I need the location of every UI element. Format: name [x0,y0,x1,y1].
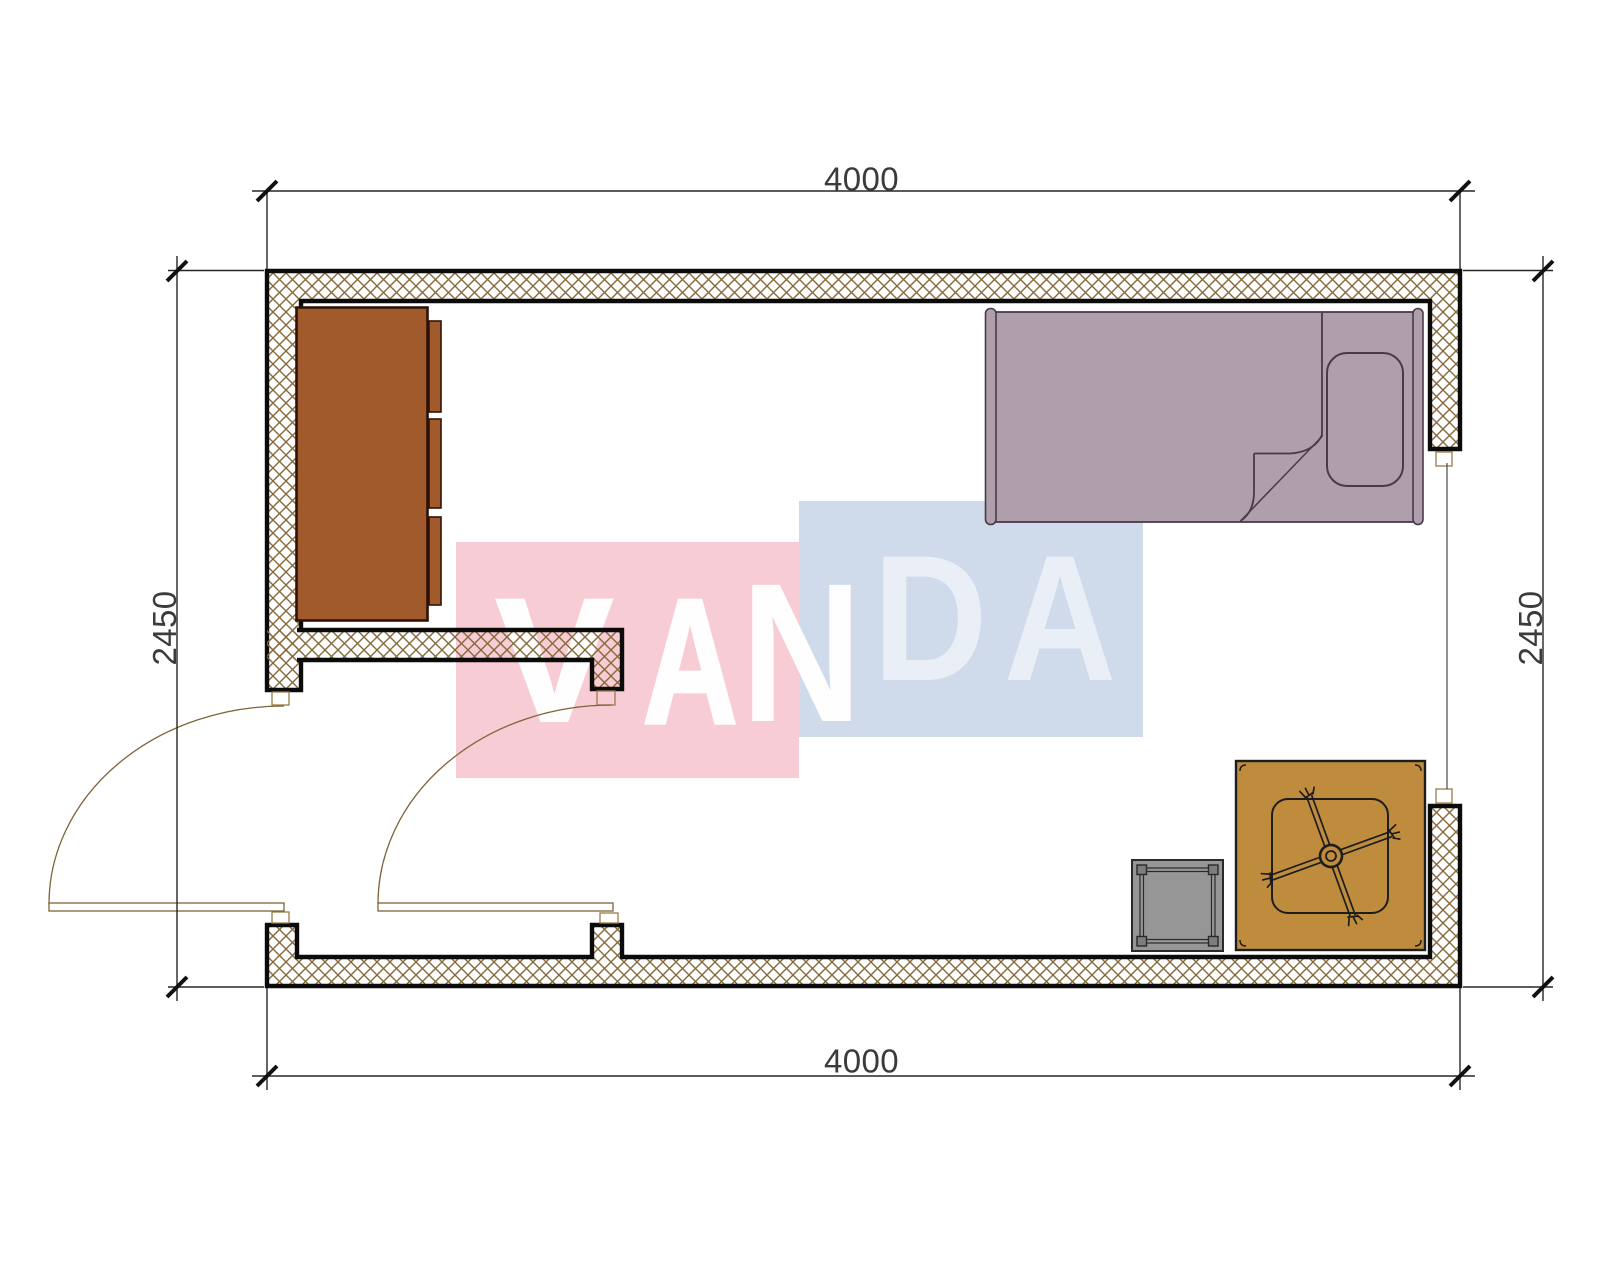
svg-text:A: A [1004,518,1117,719]
svg-text:2450: 2450 [1512,590,1549,665]
svg-text:A: A [643,563,738,762]
svg-text:4000: 4000 [824,161,899,198]
svg-text:2450: 2450 [146,590,183,665]
svg-text:D: D [873,518,988,718]
svg-text:N: N [741,542,862,763]
svg-text:4000: 4000 [824,1043,899,1080]
